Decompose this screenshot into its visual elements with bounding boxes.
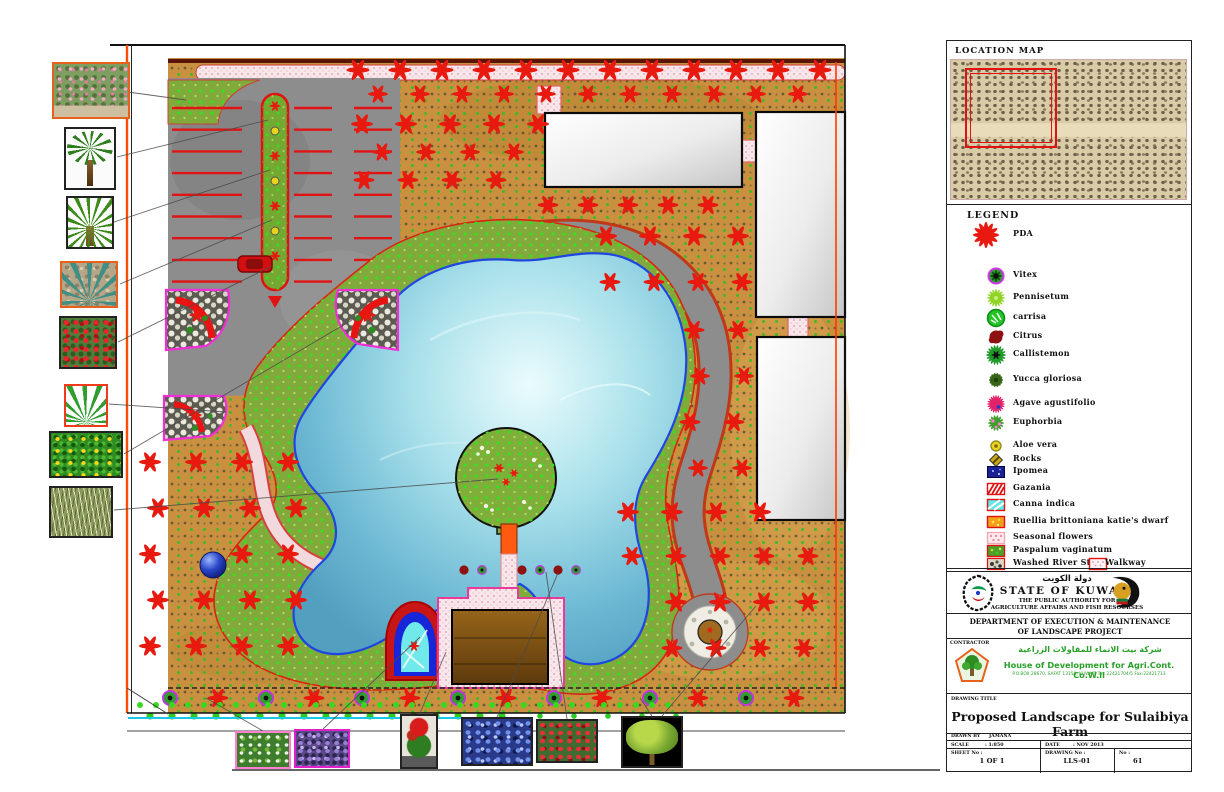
yucca-icon [981, 369, 1011, 391]
euphorbia-icon [981, 412, 1011, 434]
boundary-strip [168, 59, 845, 63]
legend-item-label: Walkway [1105, 557, 1146, 567]
plant-photo-oleander [52, 62, 130, 119]
sheet-no-value: 1 OF 1 [957, 757, 1027, 765]
fountain-sphere [200, 552, 226, 578]
plant-photo-yucca [66, 196, 114, 249]
building-3 [757, 337, 845, 520]
pda-icon [971, 224, 1001, 246]
legend-item-label: Agave agustifolio [1013, 397, 1096, 407]
legend-item-label: carrisa [1013, 311, 1046, 321]
plant-photo-agave [60, 261, 118, 308]
plant-photo-groundcover [49, 431, 123, 478]
building-2 [756, 112, 845, 317]
legend-item-label: Callistemon [1013, 348, 1070, 358]
drawing-title-label: DRAWING TITLE [951, 696, 997, 702]
plant-photo-pennisetum [49, 486, 113, 538]
landscape-drawing-sheet: LOCATION MAP LEGEND PDAVitexPennisetumca… [0, 0, 1224, 792]
plant-photo-canna [400, 714, 438, 769]
department-line2: OF LANDSCAPE PROJECT [957, 627, 1183, 636]
kuwait-emblem-icon [959, 574, 997, 612]
legend-item-label: Euphorbia [1013, 416, 1062, 426]
plant-photo-ipomea [461, 717, 533, 766]
legend-item-label: Aloe vera [1013, 439, 1057, 449]
contractor-arabic: شركة بيت الانماء للمقاولات الزراعية [995, 645, 1185, 654]
pennisetum-icon [981, 287, 1011, 309]
no-value: 61 [1133, 757, 1142, 765]
date-label: DATE [1045, 742, 1060, 748]
contractor-label: CONTRACTOR [950, 640, 989, 646]
legend-item-euphorbia: Euphorbia [947, 412, 1193, 434]
plant-photo-aloe-vera [64, 384, 108, 427]
sheet-no-label: SHEET No : [951, 750, 983, 756]
plant-photo-callistemon [536, 719, 598, 763]
no-label: No : [1119, 750, 1130, 756]
building-1 [545, 113, 742, 187]
department-line1: DEPARTMENT OF EXECUTION & MAINTENANCE [957, 617, 1183, 626]
plant-photo-vitex-tree [621, 716, 683, 768]
contractor-details: P.O.BOX 28670, SAFAT 13150, KUWAIT Tel: … [989, 672, 1189, 677]
location-map-image [950, 59, 1187, 200]
legend-item-callistemon: Callistemon [947, 344, 1193, 366]
gazebo [672, 594, 748, 670]
legend-item-label: Citrus [1013, 330, 1042, 340]
legend-item-label: Ipomea [1013, 465, 1048, 475]
contractor-name: House of Development for Agri.Cont. Co.W… [989, 660, 1189, 680]
legend-item-label: Yucca gloriosa [1013, 373, 1082, 383]
drawn-by-label: DRAWN BY [951, 734, 980, 739]
legend-item-label: Ruellia brittoniana katie's dwarf [1013, 515, 1169, 525]
title-block-panel: LOCATION MAP LEGEND PDAVitexPennisetumca… [946, 40, 1192, 772]
car [238, 256, 272, 272]
legend-item-label: Vitex [1013, 269, 1037, 279]
location-map-title: LOCATION MAP [955, 46, 1044, 56]
drawn-by-value: JAMANA [989, 734, 1011, 739]
legend-item-pennisetum: Pennisetum [947, 287, 1193, 309]
drawing-no-value: LLS-01 [1045, 757, 1109, 765]
vitex-icon [981, 265, 1011, 287]
blue-flower-bed [386, 602, 444, 680]
legend-item-yucca: Yucca gloriosa [947, 369, 1193, 391]
drawing-title: Proposed Landscape for Sulaibiya Farm [951, 709, 1189, 739]
legend-item-label: Gazania [1013, 482, 1051, 492]
scale-label: SCALE [951, 742, 969, 748]
plant-photo-euphorbia [59, 316, 117, 369]
legend-item-label: Pennisetum [1013, 291, 1069, 301]
legend-item-label: Canna indica [1013, 498, 1075, 508]
plant-photo-date-palm [64, 127, 116, 190]
plant-photo-carrisa [235, 731, 291, 769]
scale-value: : 1:850 [985, 742, 1004, 748]
falcon-logo-icon [1103, 574, 1145, 612]
bridge [501, 524, 517, 554]
legend-item-pda: PDA [947, 224, 1193, 246]
plant-photo-ruellia [294, 729, 350, 768]
drawing-no-label: DRAWING No : [1045, 750, 1085, 756]
callistemon-icon [981, 344, 1011, 366]
contractor-logo-icon [955, 648, 989, 684]
legend-item-label: PDA [1013, 228, 1033, 238]
date-value: : NOV 2013 [1073, 742, 1104, 748]
legend-item-vitex: Vitex [947, 265, 1193, 287]
site-boundary-highlight [965, 68, 1057, 148]
